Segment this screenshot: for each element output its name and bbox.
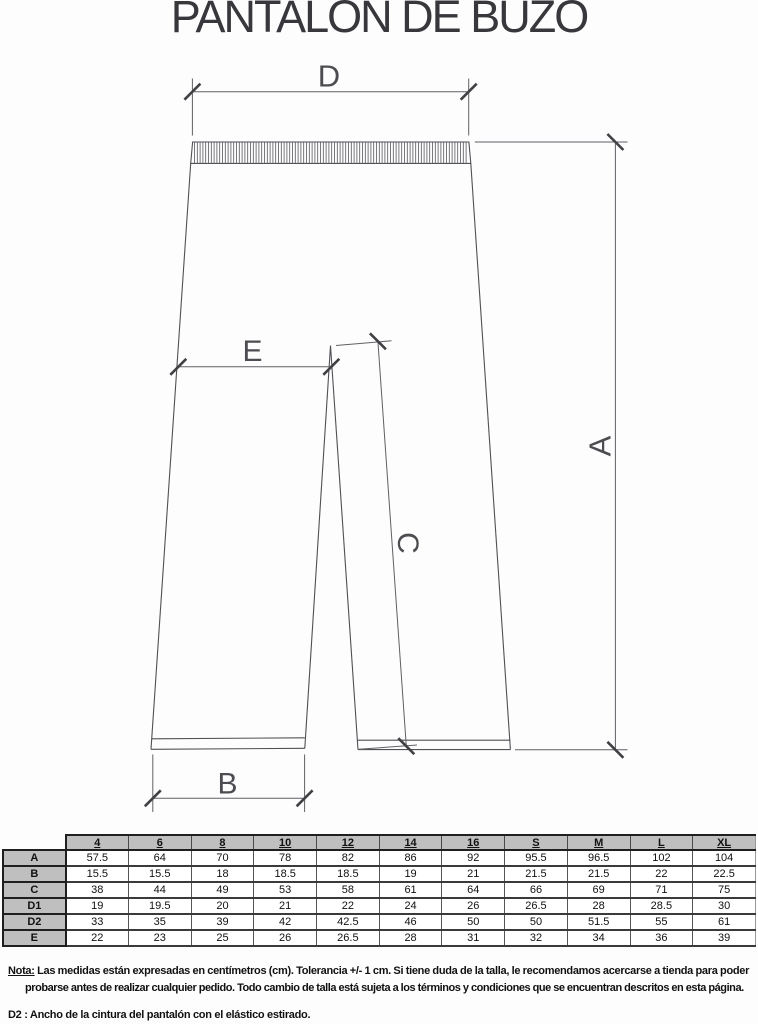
svg-text:D: D	[318, 59, 340, 94]
svg-text:B: B	[217, 768, 237, 801]
svg-text:E: E	[242, 335, 262, 368]
svg-text:C: C	[391, 532, 424, 554]
svg-text:A: A	[583, 435, 618, 456]
